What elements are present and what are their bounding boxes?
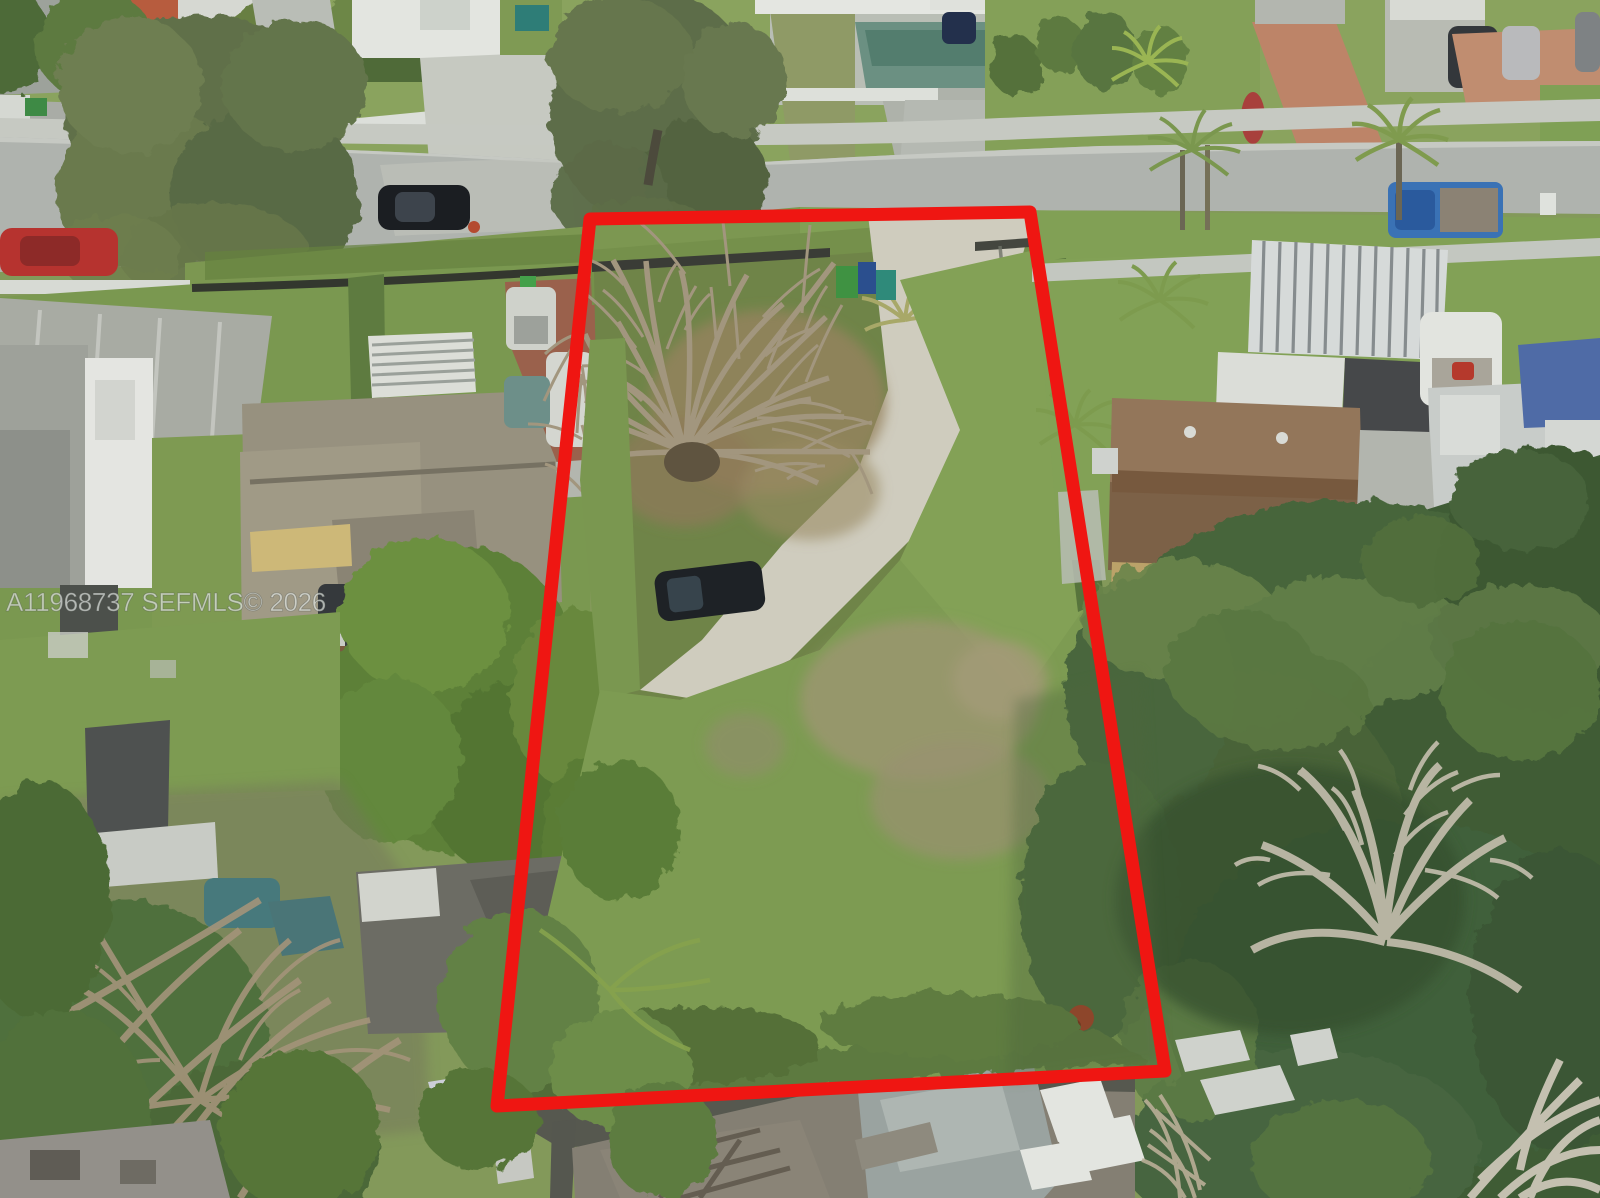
svg-text:A11968737 SEFMLS© 2026: A11968737 SEFMLS© 2026	[6, 587, 326, 617]
